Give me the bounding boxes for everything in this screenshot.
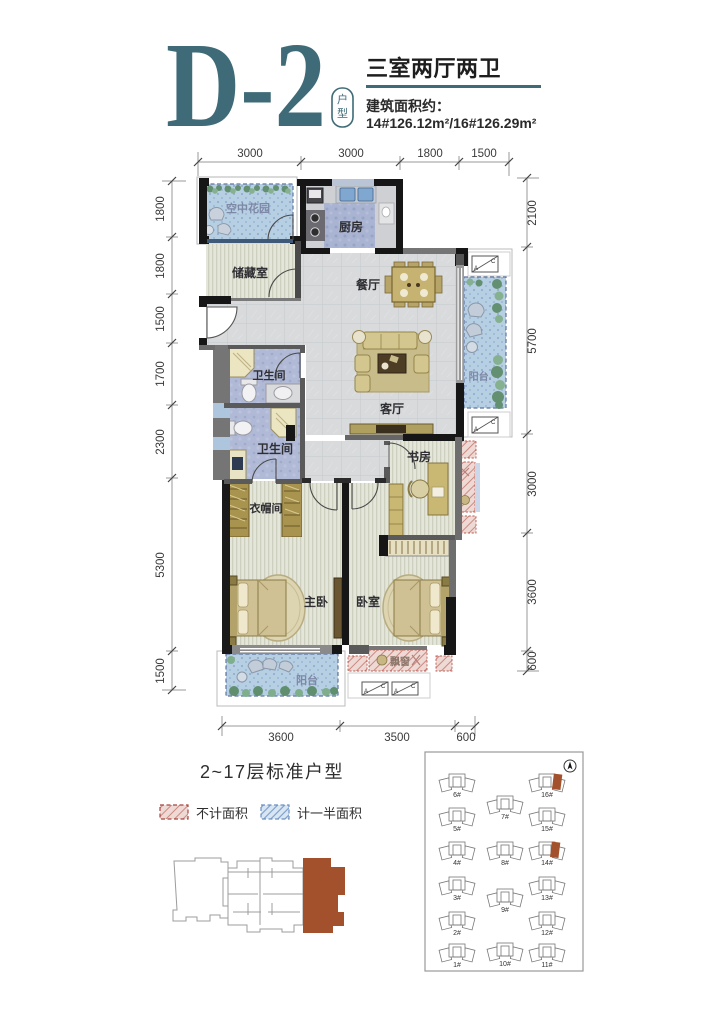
svg-text:卫生间: 卫生间 [253, 368, 286, 382]
svg-text:10#: 10# [499, 961, 511, 968]
svg-text:5300: 5300 [155, 552, 167, 578]
svg-text:2#: 2# [453, 930, 461, 937]
svg-text:5#: 5# [453, 826, 461, 833]
svg-text:1#: 1# [453, 962, 461, 969]
svg-text:C: C [491, 420, 496, 426]
svg-text:卫生间: 卫生间 [257, 441, 293, 456]
svg-text:客厅: 客厅 [379, 401, 404, 416]
svg-text:6#: 6# [453, 792, 461, 799]
svg-text:600: 600 [456, 732, 475, 744]
svg-text:1700: 1700 [155, 361, 167, 387]
svg-text:飘窗: 飘窗 [390, 655, 410, 668]
svg-text:计一半面积: 计一半面积 [297, 806, 362, 821]
svg-text:3000: 3000 [237, 148, 263, 160]
svg-text:9#: 9# [501, 907, 509, 914]
svg-text:15#: 15# [541, 826, 553, 833]
svg-text:8#: 8# [501, 860, 509, 867]
svg-text:书房: 书房 [407, 449, 431, 464]
svg-text:11#: 11# [541, 962, 552, 969]
svg-text:A: A [474, 427, 478, 433]
svg-text:600: 600 [527, 651, 539, 670]
svg-text:户: 户 [337, 92, 348, 106]
svg-text:型: 型 [337, 106, 348, 120]
svg-text:C: C [491, 259, 496, 265]
svg-text:卧室: 卧室 [356, 594, 380, 609]
svg-text:2100: 2100 [527, 200, 539, 226]
svg-text:空中花园: 空中花园 [226, 201, 270, 215]
svg-text:1800: 1800 [155, 253, 167, 279]
svg-text:14#126.12m²/16#126.29m²: 14#126.12m²/16#126.29m² [366, 115, 537, 131]
svg-text:阳台.: 阳台. [469, 370, 492, 383]
svg-text:5700: 5700 [527, 328, 539, 354]
svg-text:12#: 12# [541, 930, 553, 937]
svg-text:餐厅: 餐厅 [356, 277, 380, 292]
svg-text:13#: 13# [541, 895, 553, 902]
svg-text:14#: 14# [541, 860, 553, 867]
svg-text:3000: 3000 [338, 148, 364, 160]
svg-text:1500: 1500 [155, 658, 167, 684]
svg-text:C: C [381, 684, 386, 690]
svg-text:3600: 3600 [527, 579, 539, 605]
svg-text:3#: 3# [453, 895, 461, 902]
svg-text:储藏室: 储藏室 [232, 265, 268, 280]
svg-text:A: A [394, 689, 398, 695]
svg-text:3000: 3000 [527, 471, 539, 497]
svg-text:建筑面积约：: 建筑面积约： [366, 98, 450, 114]
svg-text:A: A [474, 266, 478, 272]
svg-text:2~17层标准户型: 2~17层标准户型 [200, 762, 344, 782]
svg-text:C: C [411, 684, 416, 690]
svg-text:1500: 1500 [471, 148, 497, 160]
svg-text:厨房: 厨房 [339, 219, 363, 234]
svg-text:三室两厅两卫: 三室两厅两卫 [366, 56, 501, 81]
svg-text:2300: 2300 [155, 429, 167, 455]
svg-text:16#: 16# [541, 792, 553, 799]
svg-text:主卧: 主卧 [304, 594, 328, 609]
svg-text:D-2: D-2 [166, 18, 326, 153]
svg-text:不计面积: 不计面积 [196, 806, 248, 821]
svg-text:4#: 4# [453, 860, 461, 867]
svg-text:3500: 3500 [384, 732, 410, 744]
svg-text:衣帽间: 衣帽间 [250, 501, 283, 515]
svg-text:1800: 1800 [417, 148, 443, 160]
svg-text:7#: 7# [501, 814, 509, 821]
svg-text:A: A [364, 689, 368, 695]
svg-text:1800: 1800 [155, 196, 167, 222]
svg-text:1500: 1500 [155, 306, 167, 332]
svg-text:3600: 3600 [268, 732, 294, 744]
svg-text:阳台: 阳台 [296, 673, 318, 687]
